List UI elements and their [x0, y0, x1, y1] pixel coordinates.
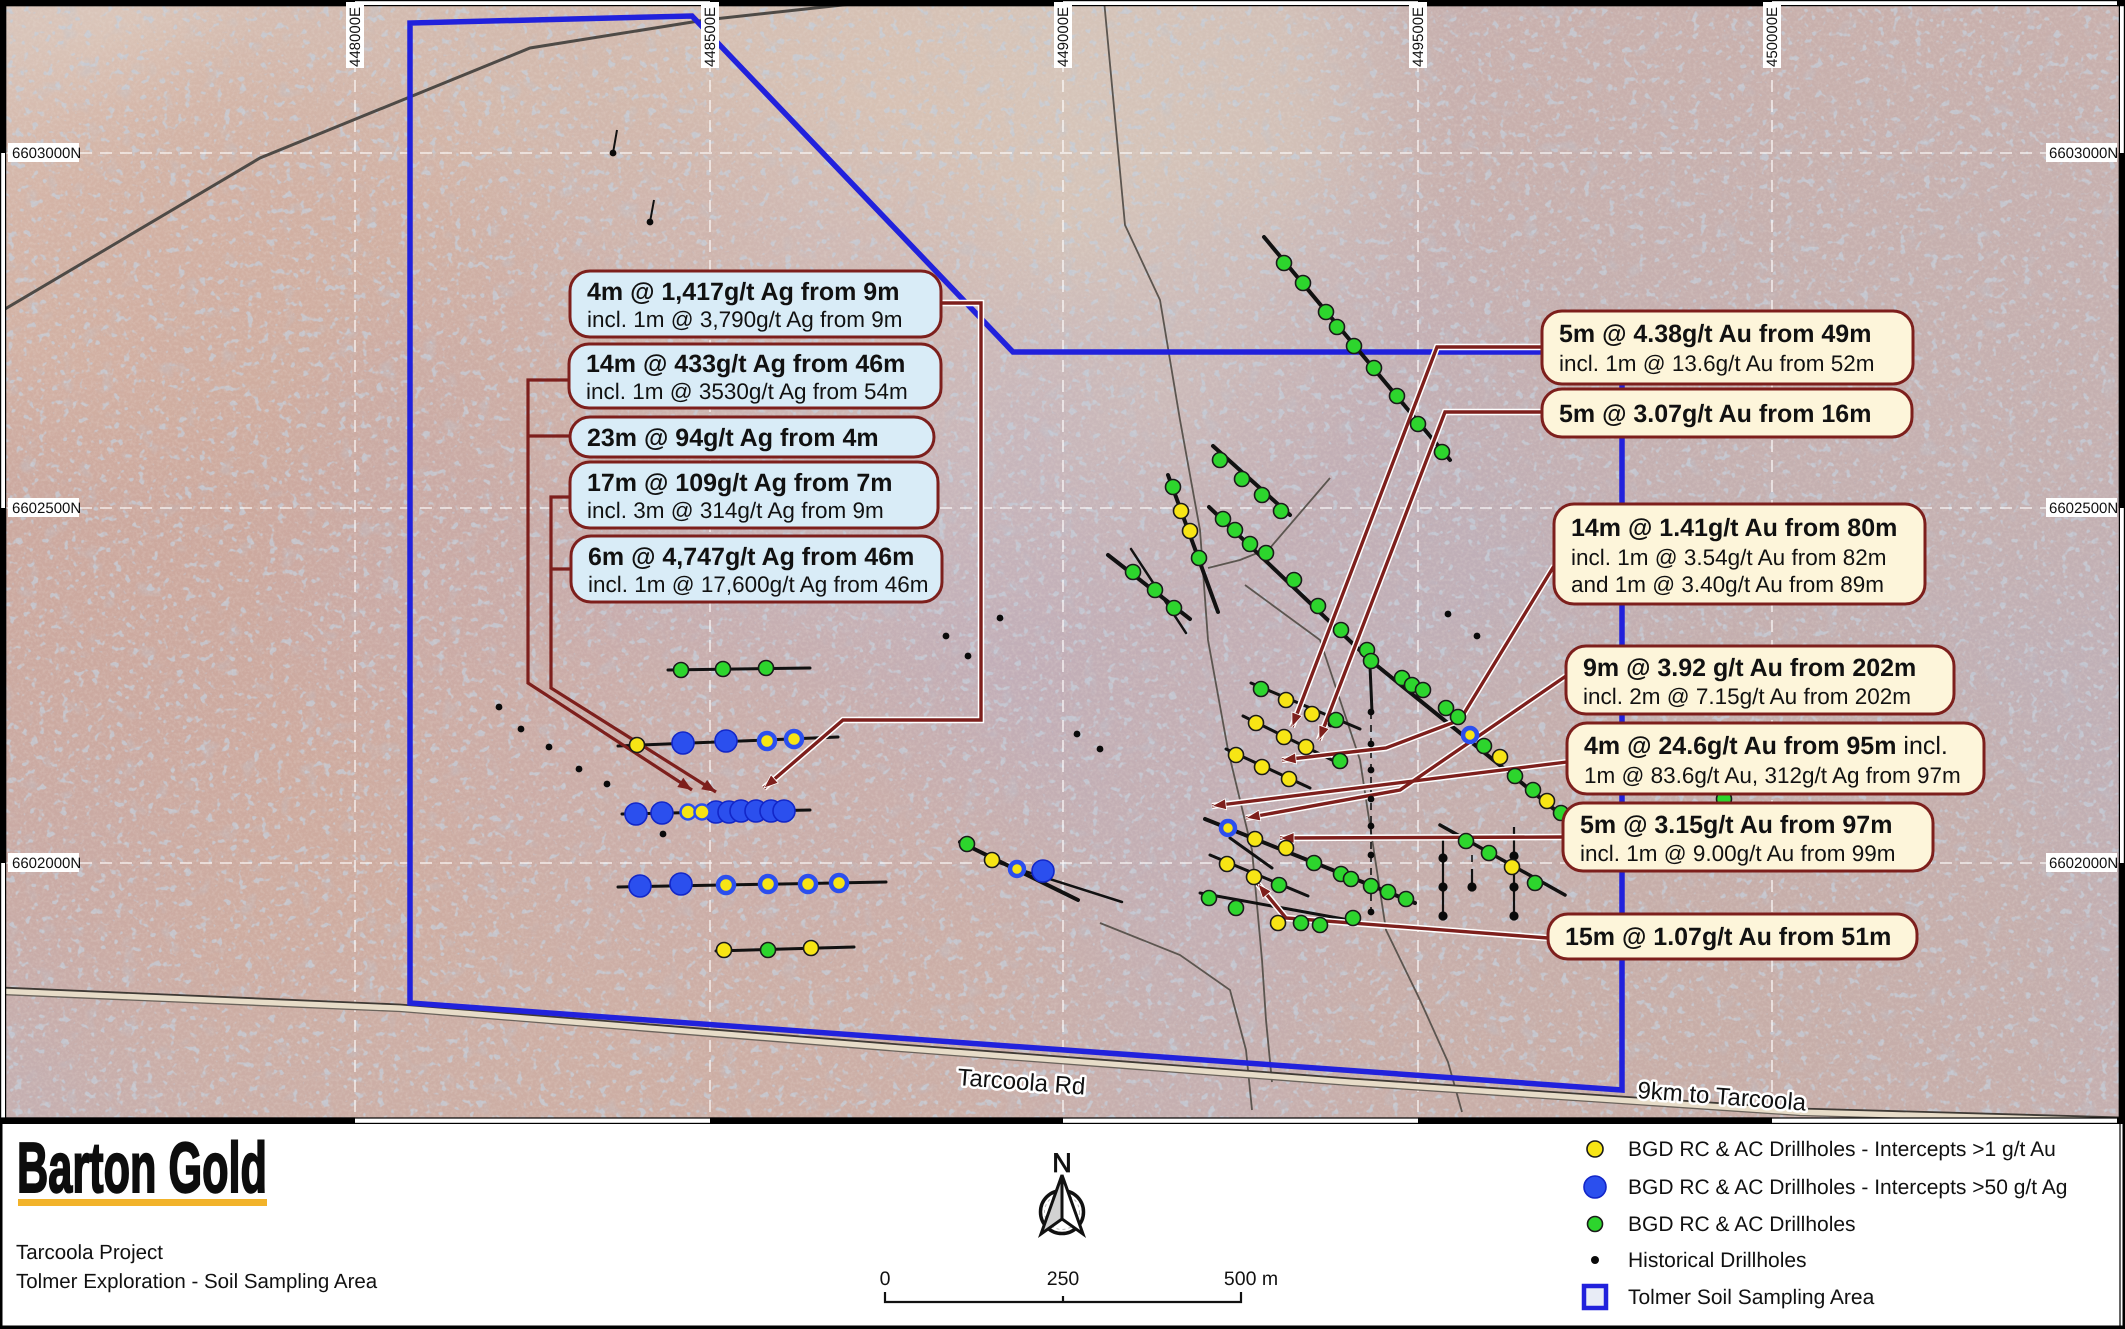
svg-text:23m @ 94g/t Ag from 4m: 23m @ 94g/t Ag from 4m	[587, 424, 879, 452]
svg-text:5m @ 3.07g/t Au from 16m: 5m @ 3.07g/t Au from 16m	[1559, 400, 1871, 428]
svg-text:4m @ 1,417g/t Ag from 9m: 4m @ 1,417g/t Ag from 9m	[587, 278, 899, 306]
svg-text:14m @ 433g/t Ag from 46m: 14m @ 433g/t Ag from 46m	[586, 350, 905, 378]
svg-text:6603000N: 6603000N	[12, 145, 81, 162]
svg-text:17m @ 109g/t Ag from 7m: 17m @ 109g/t Ag from 7m	[587, 469, 892, 497]
svg-text:6603000N: 6603000N	[2049, 145, 2118, 162]
svg-text:4m @ 24.6g/t Au from 95m incl.: 4m @ 24.6g/t Au from 95m incl.	[1584, 732, 1948, 760]
svg-text:incl. 3m @ 314g/t Ag from 9m: incl. 3m @ 314g/t Ag from 9m	[587, 498, 884, 523]
svg-text:9m @ 3.92 g/t Au from 202m: 9m @ 3.92 g/t Au from 202m	[1583, 654, 1916, 682]
svg-text:15m @ 1.07g/t Au from 51m: 15m @ 1.07g/t Au from 51m	[1565, 923, 1891, 951]
svg-text:Barton Gold: Barton Gold	[17, 1129, 267, 1208]
svg-text:incl. 1m @ 13.6g/t Au from 52m: incl. 1m @ 13.6g/t Au from 52m	[1559, 351, 1874, 376]
svg-text:14m @ 1.41g/t Au from 80m: 14m @ 1.41g/t Au from 80m	[1571, 514, 1897, 542]
svg-text:6m @ 4,747g/t Ag from 46m: 6m @ 4,747g/t Ag from 46m	[588, 543, 914, 571]
svg-text:6602000N: 6602000N	[12, 855, 81, 872]
svg-text:N: N	[1052, 1148, 1072, 1178]
svg-text:0: 0	[880, 1268, 891, 1290]
svg-text:250: 250	[1047, 1268, 1080, 1290]
svg-text:incl. 2m @ 7.15g/t Au from 202: incl. 2m @ 7.15g/t Au from 202m	[1583, 684, 1911, 709]
svg-text:6602000N: 6602000N	[2049, 855, 2118, 872]
svg-text:448500E: 448500E	[702, 7, 719, 67]
svg-text:incl. 1m @ 17,600g/t Ag from 4: incl. 1m @ 17,600g/t Ag from 46m	[588, 572, 929, 597]
svg-text:448000E: 448000E	[347, 7, 364, 67]
svg-text:incl. 1m @ 3.54g/t Au from 82m: incl. 1m @ 3.54g/t Au from 82m	[1571, 545, 1886, 570]
svg-text:incl. 1m @ 3,790g/t Ag from 9m: incl. 1m @ 3,790g/t Ag from 9m	[587, 307, 902, 332]
svg-text:5m @ 4.38g/t Au from 49m: 5m @ 4.38g/t Au from 49m	[1559, 320, 1871, 348]
svg-text:incl. 1m @ 9.00g/t Au from 99m: incl. 1m @ 9.00g/t Au from 99m	[1580, 841, 1895, 866]
svg-text:BGD RC & AC Drillholes - Inter: BGD RC & AC Drillholes - Intercepts >1 g…	[1628, 1138, 2056, 1161]
svg-text:1m @ 83.6g/t Au, 312g/t Ag fro: 1m @ 83.6g/t Au, 312g/t Ag from 97m	[1584, 763, 1961, 788]
svg-text:Tolmer Exploration - Soil Samp: Tolmer Exploration - Soil Sampling Area	[16, 1270, 378, 1293]
svg-text:Tolmer Soil Sampling Area: Tolmer Soil Sampling Area	[1628, 1286, 1875, 1309]
svg-text:Tarcoola Project: Tarcoola Project	[16, 1241, 163, 1264]
svg-text:6602500N: 6602500N	[12, 500, 81, 517]
svg-text:500 m: 500 m	[1224, 1268, 1278, 1290]
svg-text:incl. 1m @ 3530g/t Ag from 54m: incl. 1m @ 3530g/t Ag from 54m	[586, 379, 908, 404]
svg-text:BGD RC & AC Drillholes: BGD RC & AC Drillholes	[1628, 1213, 1856, 1236]
svg-text:5m @ 3.15g/t Au from 97m: 5m @ 3.15g/t Au from 97m	[1580, 811, 1892, 839]
svg-text:449500E: 449500E	[1410, 7, 1427, 67]
svg-text:6602500N: 6602500N	[2049, 500, 2118, 517]
svg-text:and 1m @ 3.40g/t Au from 89m: and 1m @ 3.40g/t Au from 89m	[1571, 572, 1884, 597]
svg-text:Historical Drillholes: Historical Drillholes	[1628, 1249, 1807, 1272]
svg-text:449000E: 449000E	[1055, 7, 1072, 67]
svg-text:450000E: 450000E	[1764, 7, 1781, 67]
svg-text:BGD RC & AC Drillholes - Inter: BGD RC & AC Drillholes - Intercepts >50 …	[1628, 1176, 2067, 1199]
